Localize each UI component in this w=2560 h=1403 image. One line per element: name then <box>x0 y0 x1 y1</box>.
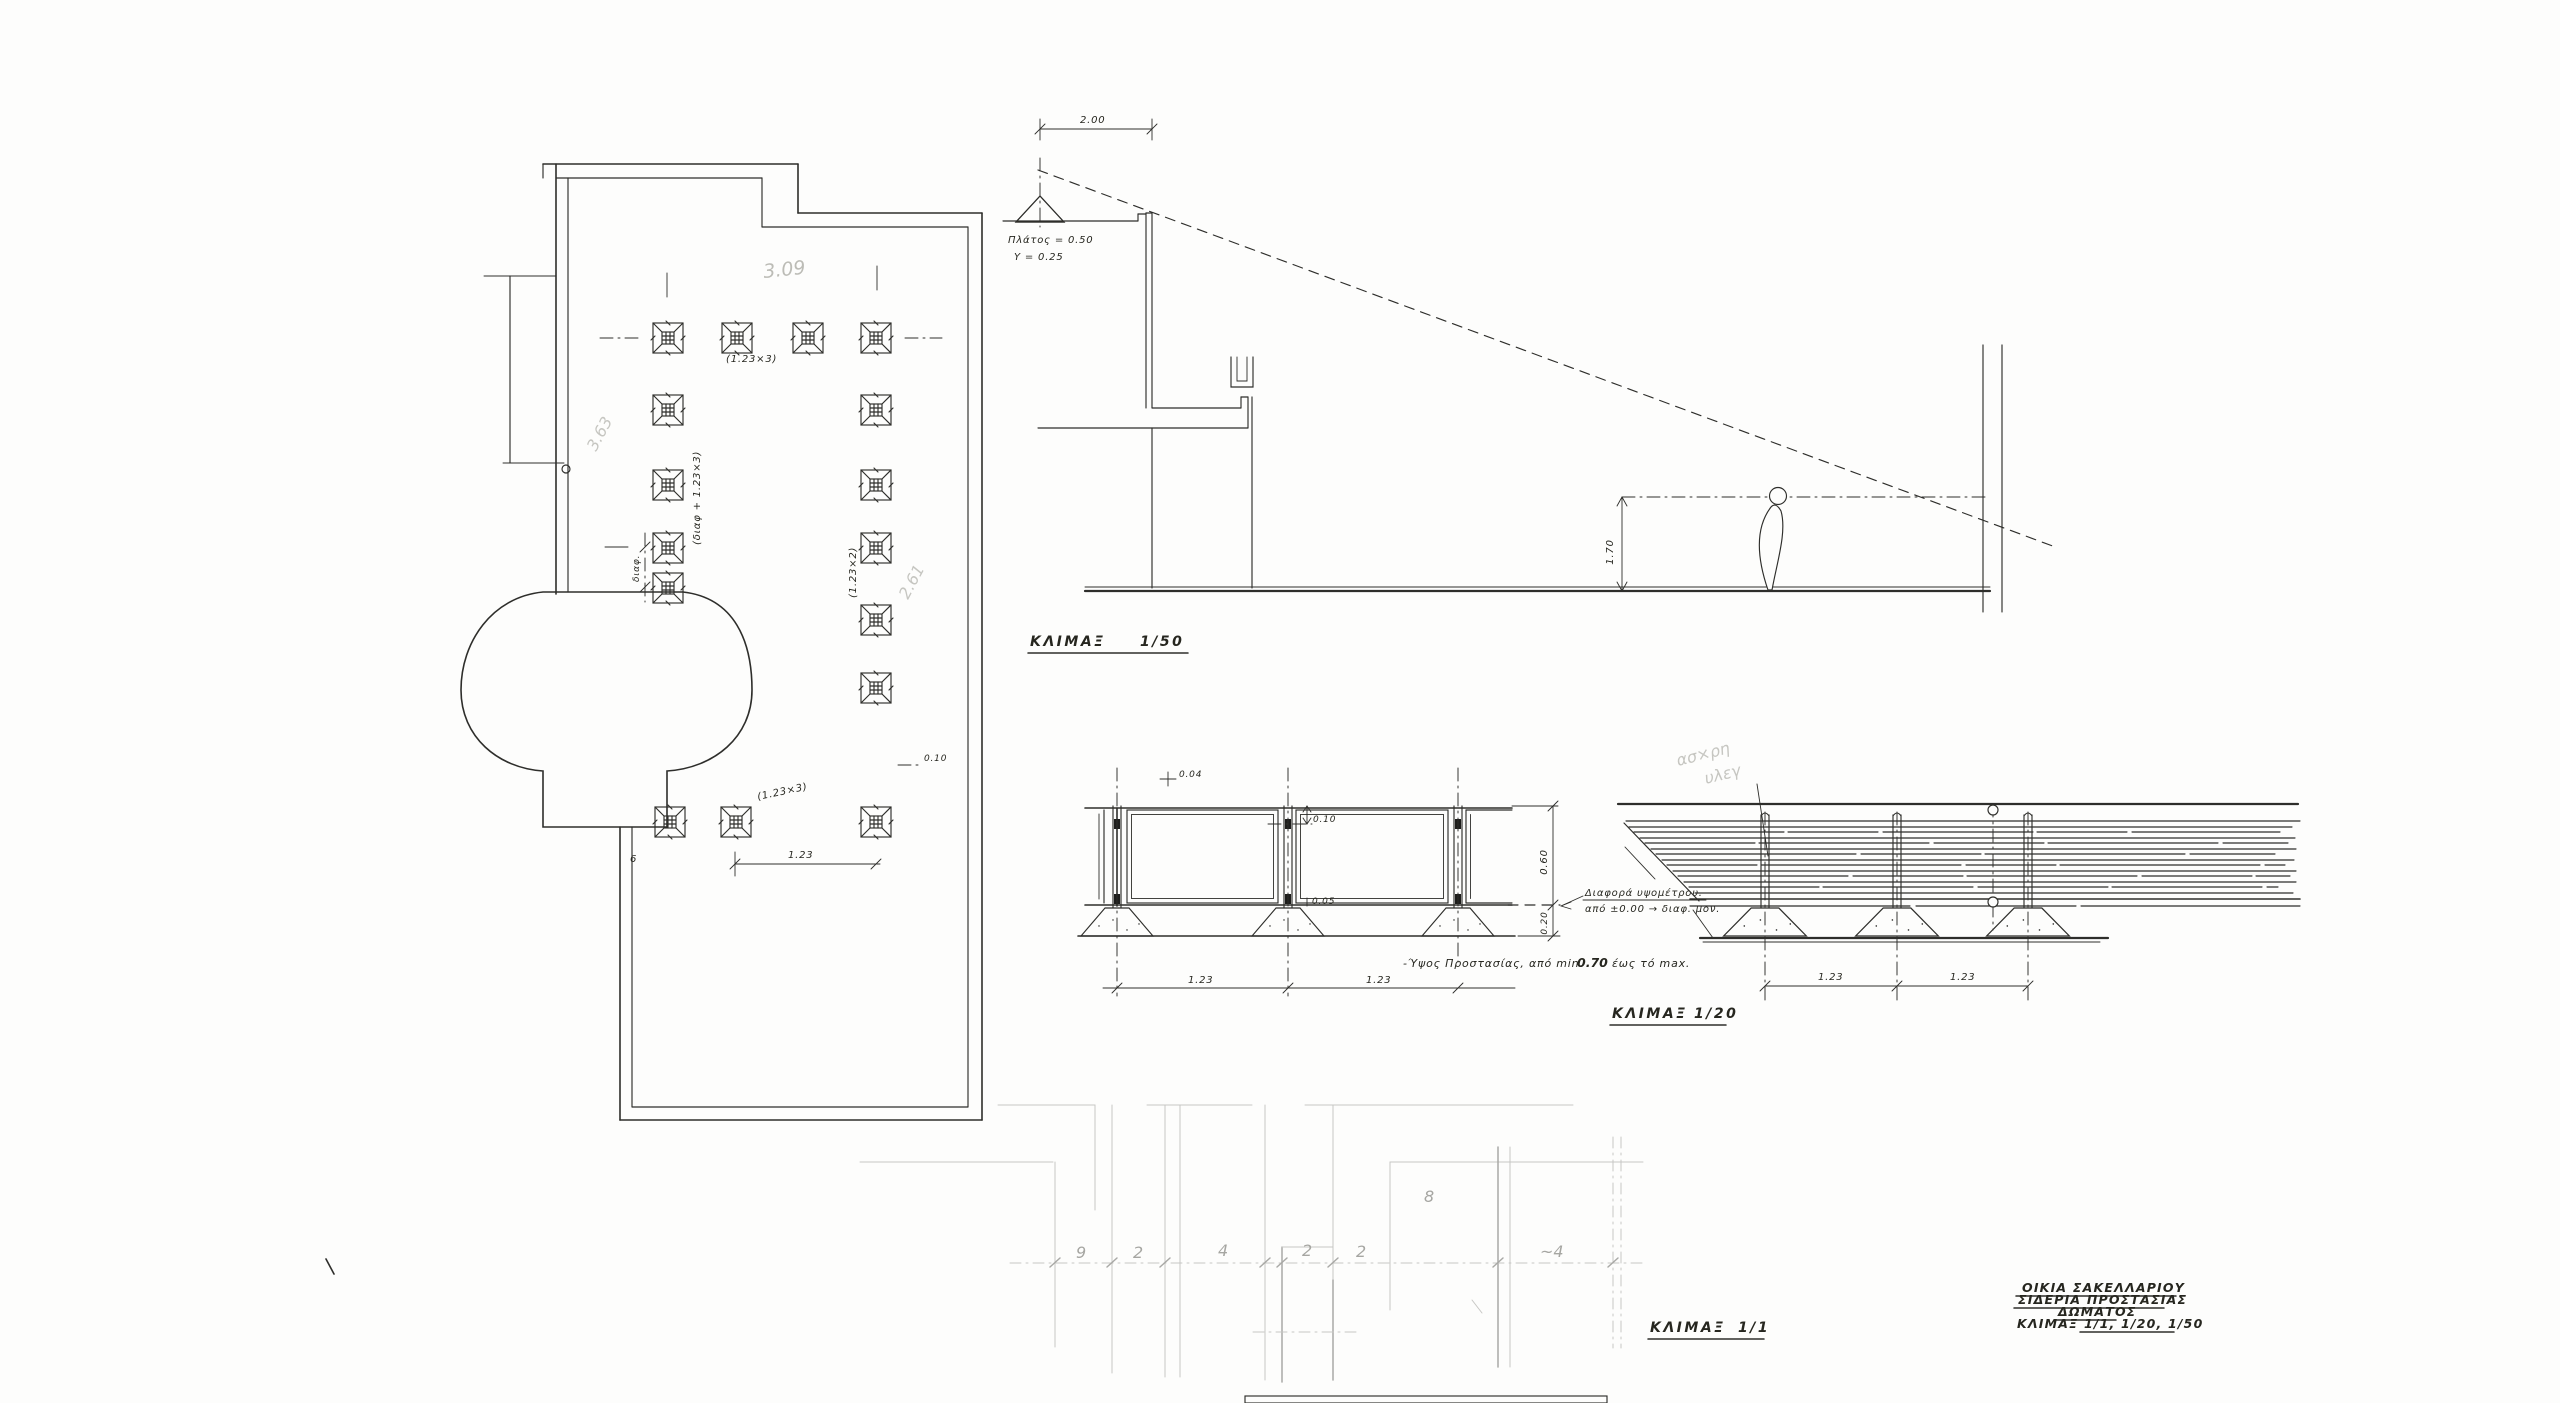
sight-line <box>1038 170 2058 548</box>
dim-h-upper: 0.60 <box>1539 849 1550 874</box>
plan-small-circle <box>562 465 570 473</box>
level-difference-note: Διαφορά υψομέτρου. από ±0.00 → διαφ. μον… <box>1561 887 1720 915</box>
bay-annotation-right: (1.23×2) <box>848 547 859 598</box>
detail-dim-6: ~4 <box>1540 1242 1564 1261</box>
eye-level: 1.70 <box>1605 497 1990 591</box>
pencil-note-line2: υλεγ <box>1702 760 1744 788</box>
roof-and-parapet <box>1003 213 1253 588</box>
railing-plan-posts <box>1761 804 2032 1000</box>
dim-gap-top: 0.10 <box>1313 815 1336 825</box>
floor-plan: 6 <box>461 164 982 1120</box>
scale-label: ΚΛΙΜΑΞ <box>1650 1320 1726 1336</box>
person-figure <box>1759 488 1786 591</box>
leader-note-line1: Διαφορά υψομέτρου. <box>1584 887 1703 899</box>
detail-note-8: 8 <box>1424 1187 1434 1206</box>
railing-plan-dimensions: 1.23 1.23 <box>1760 972 2033 991</box>
plan-walls <box>543 164 982 1120</box>
detail-1-1: 9 2 4 2 2 ~4 8 ΚΛΙΜΑΞ 1/1 <box>860 1105 1770 1382</box>
note-prefix: -Ύψος Προστασίας, από min <box>1403 957 1579 970</box>
dim-bay1: 1.23 <box>1188 975 1213 986</box>
oval-terrace <box>461 592 752 827</box>
note-value: 0.70 <box>1577 955 1608 970</box>
railing-wires <box>1629 827 2296 893</box>
drawing-sheet: 6 <box>0 0 2560 1403</box>
pencil-mark-left: 3.63 <box>583 414 617 454</box>
railing-bases <box>1078 908 1515 936</box>
dim-2m: 2.00 <box>1080 115 1105 126</box>
obstacle-triangle <box>1016 158 1064 227</box>
scales-label: ΚΛΙΜΑΞ <box>2017 1316 2078 1331</box>
scale-label-1-20: ΚΛΙΜΑΞ 1/20 <box>1610 1006 1738 1025</box>
leg-mark: 6 <box>630 854 637 865</box>
diagonal-cut <box>1624 823 1713 938</box>
scale-label-1-1: ΚΛΙΜΑΞ 1/1 <box>1648 1320 1770 1339</box>
scale-value: 1/20 <box>1694 1006 1738 1022</box>
detail-dim-1: 9 <box>1076 1243 1086 1262</box>
title-block: ΟΙΚΙΑ ΣΑΚΕΛΛΑΡΙΟΥ ΣΙΔΕΡΙΑ ΠΡΟΣΤΑΣΙΑΣ ΔΩΜ… <box>2014 1280 2203 1332</box>
dim-eye-height: 1.70 <box>1605 539 1616 564</box>
detail-dim-3: 4 <box>1218 1241 1228 1260</box>
railing-plan-bases <box>1700 908 2108 942</box>
detail-dim-2: 2 <box>1133 1243 1143 1262</box>
detail-lines <box>860 1105 1643 1382</box>
section-right-wall <box>1983 345 2002 612</box>
scale-label-1-50: ΚΛΙΜΑΞ 1/50 <box>1028 634 1188 653</box>
plan-annotations: (1.23×3) (διαφ + 1.23×3) διαφ. (1.23×2) … <box>632 354 947 876</box>
detail-dim-4: 2 <box>1302 1241 1312 1260</box>
leader-note-line2: από ±0.00 → διαφ. μον. <box>1585 903 1720 915</box>
scales-values: 1/1, 1/20, 1/50 <box>2084 1316 2203 1331</box>
triangle-note-2: Υ = 0.25 <box>1014 252 1064 263</box>
railing-plan-1-20: 1.23 1.23 ασ×ρη υλεγ ΚΛΙΜΑΞ 1/20 <box>1610 738 2300 1025</box>
dim-h-lower: 0.20 <box>1540 911 1550 934</box>
detail-dim-5: 2 <box>1356 1242 1366 1261</box>
dim-gap-bottom: 0.05 <box>1312 897 1335 907</box>
dim-bay2: 1.23 <box>1366 975 1391 986</box>
scale-value: 1/50 <box>1140 634 1184 650</box>
scale-label: ΚΛΙΜΑΞ <box>1612 1006 1688 1022</box>
offset-annotation: 0.10 <box>924 754 947 764</box>
detail-dimension-chain: 9 2 4 2 2 ~4 8 <box>1010 1187 1643 1267</box>
bay-annotation-bottom: (1.23×3) <box>756 782 808 803</box>
protection-height-note: -Ύψος Προστασίας, από min 0.70 έως τό ma… <box>1403 955 1690 970</box>
pencil-mark-right: 2.61 <box>895 562 929 602</box>
bay-annotation-top: (1.23×3) <box>726 354 777 365</box>
scale-value: 1/1 <box>1738 1320 1770 1336</box>
section-top-dimension: 2.00 <box>1035 115 1157 140</box>
triangle-note-1: Πλάτος = 0.50 <box>1008 234 1093 246</box>
plan-dim-bay1: 1.23 <box>1818 972 1843 983</box>
railing-elevation-1-20: 0.04 0.10 0.05 1.23 1.23 0.60 0.20 <box>1078 768 1720 996</box>
plan-dim-bottom: 1.23 <box>788 850 813 861</box>
section-1-50: 2.00 Πλάτος = 0.50 Υ = 0.25 <box>1003 115 2058 653</box>
gutter-profile <box>1231 357 1253 387</box>
person-head <box>1770 488 1787 505</box>
plan-left-protrusion <box>484 276 570 473</box>
scan-artifacts <box>326 1259 1607 1403</box>
pencil-mark-top: 3.09 <box>762 257 806 283</box>
diff-annotation: διαφ. <box>632 555 642 582</box>
note-suffix: έως τό max. <box>1612 957 1690 970</box>
dim-cap: 0.04 <box>1179 770 1202 780</box>
scale-label: ΚΛΙΜΑΞ <box>1030 634 1106 650</box>
plan-dim-bay2: 1.23 <box>1950 972 1975 983</box>
bay-annotation-left: (διαφ + 1.23×3) <box>692 451 703 545</box>
